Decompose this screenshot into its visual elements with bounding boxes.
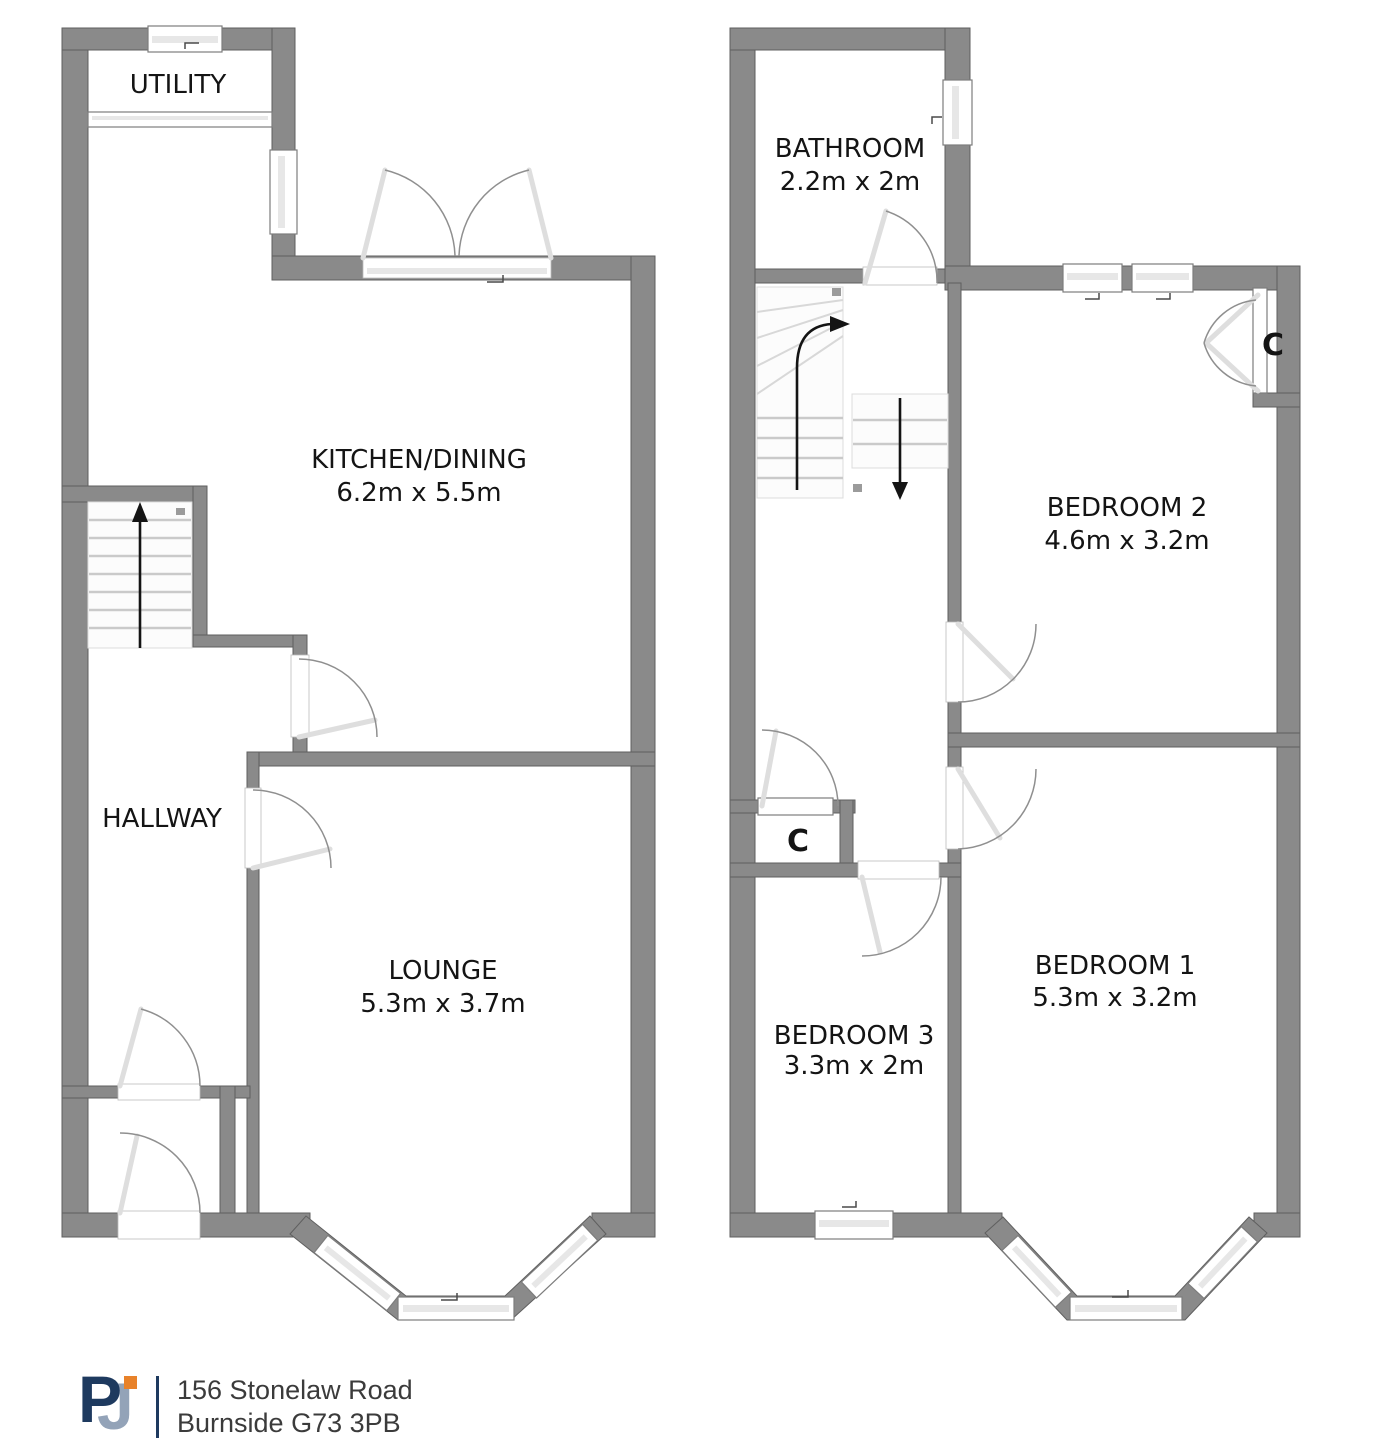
bay-window-left (1002, 1235, 1071, 1307)
window-glass (1067, 273, 1118, 280)
door-opening (946, 767, 963, 849)
window-tick (842, 1201, 856, 1207)
wall (220, 1086, 235, 1213)
room-label-bathroom: BATHROOM (775, 134, 925, 164)
window-glass (152, 36, 218, 43)
first-floor-plan: BATHROOM 2.2m x 2m BEDROOM 2 4.6m x 3.2m… (730, 28, 1300, 1320)
wall (631, 256, 655, 1213)
door-arc (385, 170, 455, 256)
window-glass (278, 156, 285, 228)
wall (730, 28, 970, 50)
wall (62, 486, 207, 502)
bay-window-right (521, 1224, 597, 1298)
wall (948, 733, 1300, 747)
room-dims-lounge: 5.3m x 3.7m (360, 989, 525, 1019)
logo-divider (156, 1376, 159, 1438)
logo-orange-square-icon (124, 1376, 137, 1389)
window-glass (952, 86, 959, 139)
wall (730, 863, 860, 877)
room-dims-bedroom3: 3.3m x 2m (784, 1051, 924, 1081)
room-label-utility: UTILITY (130, 70, 227, 100)
door-opening (291, 655, 309, 737)
door-arc (459, 170, 529, 256)
room-label-kitchen-dining: KITCHEN/DINING (311, 445, 527, 475)
window-glass (819, 1220, 889, 1227)
bay-window-right (1188, 1227, 1257, 1299)
room-dims-kitchen-dining: 6.2m x 5.5m (336, 478, 501, 508)
wall (62, 28, 88, 1237)
window-glass (403, 1305, 509, 1312)
ground-stairs (88, 502, 192, 648)
wall (193, 486, 207, 647)
window-glass (92, 116, 268, 120)
room-label-bedroom3: BEDROOM 3 (774, 1021, 935, 1051)
room-label-lounge: LOUNGE (388, 956, 497, 986)
wall (937, 863, 961, 877)
door-leaf (862, 877, 880, 952)
window-glass (1075, 1305, 1177, 1312)
threshold (367, 268, 547, 274)
closet-door-leaf (1206, 343, 1258, 391)
window-tick (1156, 293, 1170, 299)
stair-post (832, 288, 841, 296)
ground-openings (118, 258, 551, 1239)
door-leaf (253, 849, 330, 868)
ground-floor-plan: UTILITY KITCHEN/DINING 6.2m x 5.5m HALLW… (62, 26, 655, 1320)
door-leaf (299, 720, 375, 737)
closet-door-leaf (1206, 295, 1258, 343)
room-dims-bedroom1: 5.3m x 3.2m (1032, 983, 1197, 1013)
closet-label-bedroom2: C (1262, 328, 1284, 363)
ground-walls (62, 28, 655, 1320)
bay-window-left (314, 1235, 400, 1310)
wall (247, 752, 655, 766)
footer: P J 156 Stonelaw Road Burnside G73 3PB (78, 1374, 413, 1440)
door-opening (245, 788, 261, 868)
closet-label-landing: C (787, 824, 809, 859)
stair-post (176, 508, 185, 515)
floorplan-canvas: UTILITY KITCHEN/DINING 6.2m x 5.5m HALLW… (0, 0, 1389, 1456)
door-arc (141, 1009, 200, 1086)
first-window-ticks (842, 117, 1170, 1297)
wall (1253, 393, 1300, 407)
address-line-2: Burnside G73 3PB (177, 1407, 413, 1440)
door-leaf (120, 1136, 137, 1213)
door-leaf (363, 170, 385, 258)
door-arc (299, 659, 377, 737)
door-opening (118, 1084, 200, 1100)
wall (730, 28, 755, 1237)
ground-doors (120, 170, 551, 1213)
wall (948, 283, 961, 1213)
door-leaf (120, 1009, 141, 1086)
first-stairs (757, 287, 948, 500)
closet-door-front (758, 798, 833, 815)
window-tick (932, 117, 942, 124)
room-label-hallway: HALLWAY (102, 804, 222, 834)
address-line-1: 156 Stonelaw Road (177, 1374, 413, 1407)
door-leaf (762, 731, 776, 806)
room-dims-bathroom: 2.2m x 2m (780, 167, 920, 197)
logo-letter-p: P (78, 1366, 122, 1432)
wall (193, 635, 307, 647)
window-tick (1085, 293, 1099, 299)
wall (945, 28, 970, 283)
pj-logo: P J (78, 1374, 142, 1440)
door-opening (863, 267, 937, 285)
door-leaf (958, 769, 1000, 838)
wall (755, 269, 863, 283)
door-leaf (958, 624, 1013, 679)
door-opening (858, 861, 939, 879)
first-walls (730, 28, 1300, 1320)
room-label-bedroom2: BEDROOM 2 (1047, 493, 1208, 523)
room-label-bedroom1: BEDROOM 1 (1035, 951, 1196, 981)
stair-post (853, 484, 862, 492)
arrowhead (892, 482, 908, 500)
door-opening (118, 1211, 200, 1239)
window-glass (1136, 273, 1189, 280)
room-dims-bedroom2: 4.6m x 3.2m (1044, 526, 1209, 556)
property-address: 156 Stonelaw Road Burnside G73 3PB (177, 1374, 413, 1440)
door-leaf (529, 170, 551, 258)
front-door-arc (120, 1133, 200, 1213)
door-opening (946, 622, 963, 702)
